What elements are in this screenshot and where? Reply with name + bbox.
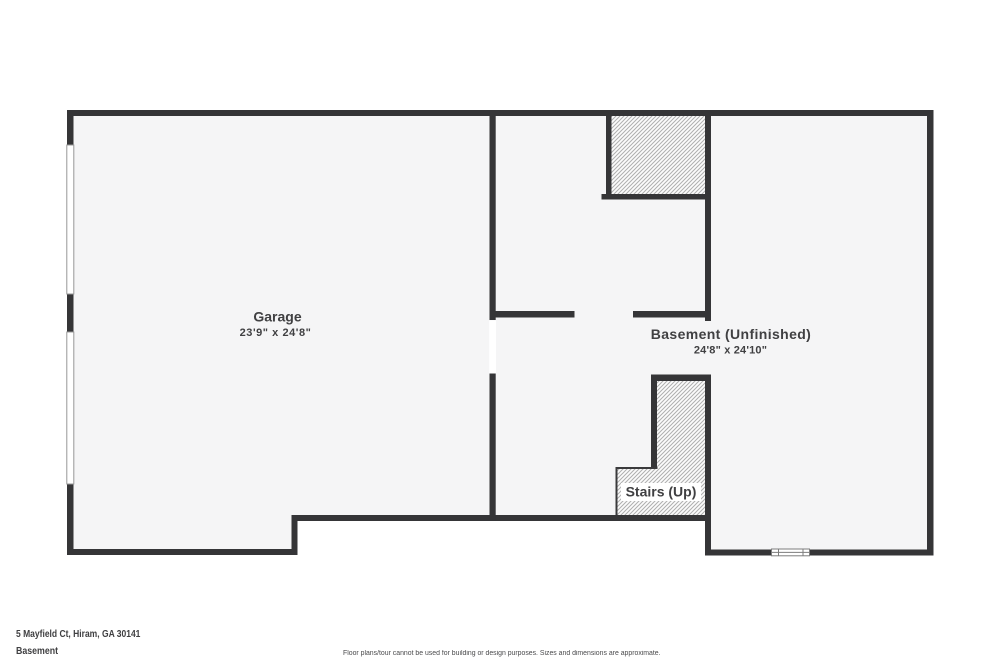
svg-text:23'9" x 24'8": 23'9" x 24'8"	[240, 327, 312, 339]
svg-text:24'8" x 24'10": 24'8" x 24'10"	[694, 345, 767, 357]
svg-text:Stairs (Up): Stairs (Up)	[626, 484, 697, 500]
svg-text:Garage: Garage	[253, 309, 301, 325]
svg-text:Basement (Unfinished): Basement (Unfinished)	[651, 326, 811, 342]
